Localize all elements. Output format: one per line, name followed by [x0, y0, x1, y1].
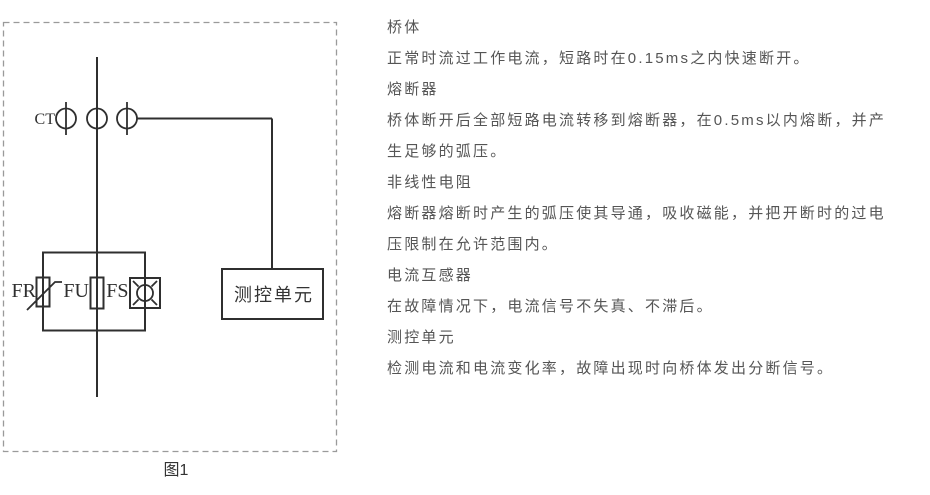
desc-varistor-2: 压限制在允许范围内。	[387, 229, 927, 260]
bridge-switch-corner-br	[152, 300, 158, 306]
description-panel: 桥体 正常时流过工作电流，短路时在0.15ms之内快速断开。 熔断器 桥体断开后…	[387, 12, 927, 384]
term-control-unit: 测控单元	[387, 322, 927, 353]
bridge-switch-corner-tr	[152, 281, 158, 287]
figure-caption: 图1	[164, 462, 189, 479]
term-fuse: 熔断器	[387, 74, 927, 105]
ct-label: CT	[35, 111, 56, 128]
desc-fuse-2: 生足够的弧压。	[387, 136, 927, 167]
desc-control-unit: 检测电流和电流变化率，故障出现时向桥体发出分断信号。	[387, 353, 927, 384]
circuit-diagram: CT FR FU FS 测控单元 图1	[0, 0, 370, 495]
desc-fuse-1: 桥体断开后全部短路电流转移到熔断器，在0.5ms以内熔断，并产	[387, 105, 927, 136]
bridge-switch-corner-bl	[133, 300, 139, 306]
figure-dashed-border	[4, 23, 337, 452]
term-varistor: 非线性电阻	[387, 167, 927, 198]
page: CT FR FU FS 测控单元 图1 桥体 正常时流过工作电流，短路时在0.1…	[0, 0, 930, 495]
bridge-switch-corner-tl	[133, 281, 139, 287]
fs-label: FS	[106, 280, 128, 302]
fu-label: FU	[63, 280, 89, 302]
desc-ct: 在故障情况下，电流信号不失真、不滞后。	[387, 291, 927, 322]
term-ct: 电流互感器	[387, 260, 927, 291]
desc-bridge: 正常时流过工作电流，短路时在0.15ms之内快速断开。	[387, 43, 927, 74]
control-unit-label: 测控单元	[234, 285, 314, 305]
desc-varistor-1: 熔断器熔断时产生的弧压使其导通，吸收磁能，并把开断时的过电	[387, 198, 927, 229]
term-bridge: 桥体	[387, 12, 927, 43]
fr-label: FR	[12, 280, 37, 302]
